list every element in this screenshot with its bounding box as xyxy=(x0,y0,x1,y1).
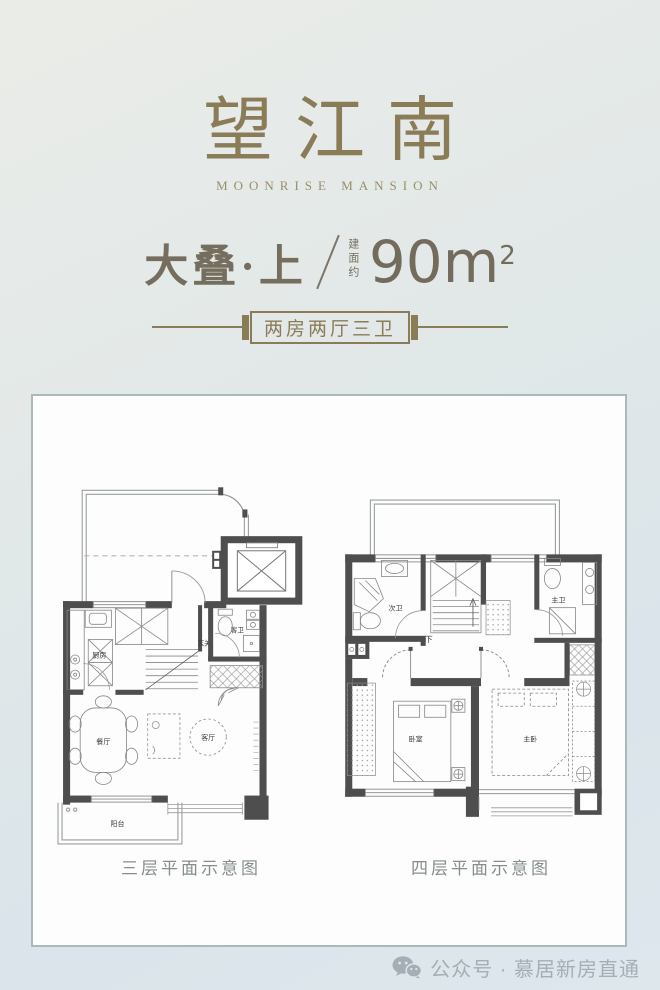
room-label-kitchen: 厨房 xyxy=(92,651,106,660)
room-label-dining: 餐厅 xyxy=(96,737,110,746)
badge-cap-right xyxy=(411,315,418,340)
hall-closet xyxy=(210,666,262,688)
hall-wall xyxy=(352,678,569,789)
master-bed xyxy=(492,689,568,775)
area-prefix-label: 建面约 xyxy=(345,238,361,286)
floorplan-level3: 厨房 玄关 xyxy=(55,452,327,850)
area-exponent: 2 xyxy=(499,241,516,271)
room-label-second-bath: 次卫 xyxy=(388,604,402,613)
room-label-master-bedroom: 主卧 xyxy=(523,734,537,743)
footer: 公众号 · 慕居新房直通 xyxy=(392,952,640,982)
bedroom-wardrobe xyxy=(347,683,375,776)
room-label-balcony: 阳台 xyxy=(110,819,124,828)
bedroom-doors xyxy=(382,647,509,678)
layout-badge: 两房两厅三卫 xyxy=(250,311,410,344)
master-bathroom xyxy=(534,554,601,643)
badge-cap-left xyxy=(242,315,249,340)
master-closet xyxy=(570,645,595,675)
project-subtitle: MOONRISE MANSION xyxy=(0,178,660,194)
armchair xyxy=(218,688,238,706)
room-label-master-bath: 主卫 xyxy=(551,596,565,605)
floorplan-level4: 次卫 下 主卫 xyxy=(345,492,617,844)
stairs-level3 xyxy=(115,605,202,690)
closet-wall xyxy=(564,643,569,679)
room-label-bedroom: 卧室 xyxy=(409,734,423,743)
caption-level4: 四层平面示意图 xyxy=(345,854,617,879)
entry-door xyxy=(172,571,205,603)
poster: 望江南 MOONRISE MANSION 大叠·上 建面约 90m2 两房两厅三… xyxy=(0,0,660,990)
room-label-living: 客厅 xyxy=(201,733,215,742)
bay-window xyxy=(479,797,575,816)
caption-level3: 三层平面示意图 xyxy=(55,854,327,879)
project-title: 望江南 xyxy=(0,74,660,175)
radiator-marks xyxy=(253,722,258,770)
spec-row: 大叠·上 建面约 90m2 xyxy=(0,226,660,298)
bay-window xyxy=(168,803,243,815)
tv-cabinet xyxy=(148,714,180,758)
stairs-level4 xyxy=(431,554,486,632)
area-value: 90m2 xyxy=(369,233,516,291)
terrace-door-jambs xyxy=(218,487,247,517)
floorplan-panel: 厨房 玄关 xyxy=(31,394,627,947)
bedroom-bed xyxy=(394,699,465,781)
room-label-guest-bath: 客卫 xyxy=(231,625,245,634)
decor-circles xyxy=(577,682,591,781)
badge-line-left xyxy=(152,326,242,328)
footer-account-label: 公众号 · 慕居新房直通 xyxy=(430,953,640,982)
badge-line-right xyxy=(418,326,508,328)
slash-divider xyxy=(316,235,340,290)
badge-row: 两房两厅三卫 xyxy=(0,310,660,344)
elevator-shaft xyxy=(212,540,299,601)
unit-type-label: 大叠·上 xyxy=(144,230,307,294)
wechat-icon xyxy=(392,955,422,979)
hall-storage xyxy=(486,601,510,635)
roof-terrace-walls xyxy=(370,500,559,556)
stairs-down-label: 下 xyxy=(425,635,433,644)
second-bathroom xyxy=(345,554,425,646)
